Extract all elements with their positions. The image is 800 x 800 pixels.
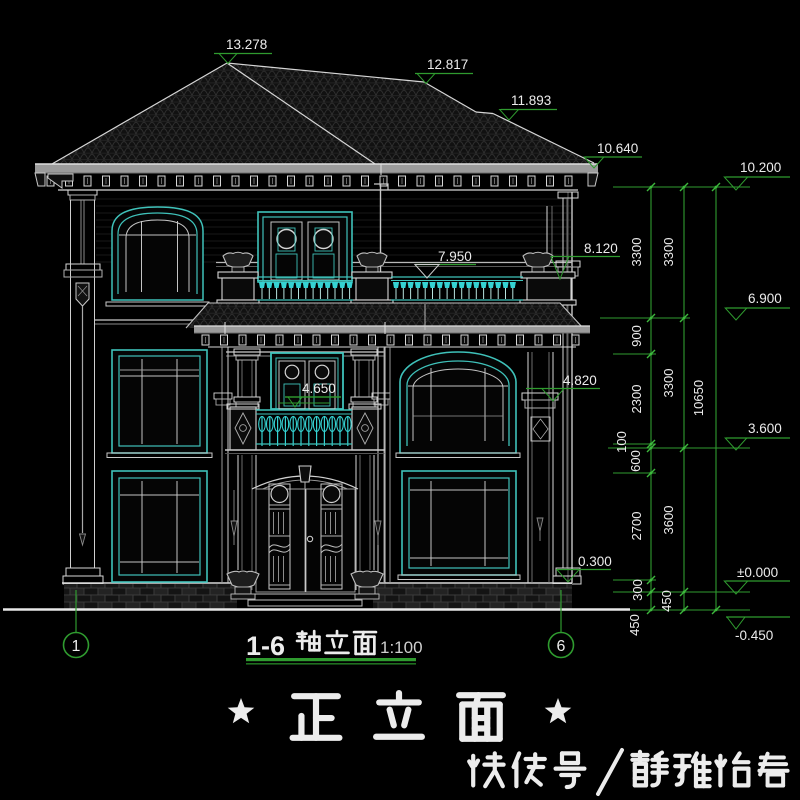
svg-text:1:100: 1:100 [380,638,423,657]
svg-text:10.640: 10.640 [597,141,638,156]
svg-text:3300: 3300 [661,238,676,267]
svg-text:300: 300 [630,579,645,601]
svg-text:600: 600 [628,450,643,472]
svg-text:2300: 2300 [629,385,644,414]
svg-text:-0.450: -0.450 [735,628,773,643]
svg-text:8.120: 8.120 [584,241,618,256]
svg-text:0.300: 0.300 [578,554,612,569]
svg-text:3300: 3300 [629,238,644,267]
svg-text:2700: 2700 [629,512,644,541]
svg-text:11.893: 11.893 [511,93,551,108]
svg-text:450: 450 [659,590,674,612]
svg-text:900: 900 [629,325,644,347]
svg-text:3300: 3300 [661,369,676,398]
svg-text:13.278: 13.278 [226,37,267,52]
svg-text:7.950: 7.950 [438,249,472,264]
svg-text:100: 100 [614,431,629,453]
svg-text:1: 1 [72,638,81,655]
svg-text:6.900: 6.900 [748,291,782,306]
svg-text:3600: 3600 [661,506,676,535]
svg-text:12.817: 12.817 [427,57,468,72]
svg-text:6: 6 [557,638,566,655]
svg-text:10.200: 10.200 [740,160,781,175]
svg-text:450: 450 [627,614,642,636]
svg-text:1-6: 1-6 [246,631,285,661]
svg-text:4.650: 4.650 [302,381,336,396]
svg-text:10650: 10650 [691,380,706,416]
svg-text:±0.000: ±0.000 [737,565,778,580]
svg-text:3.600: 3.600 [748,421,782,436]
svg-text:4.820: 4.820 [563,373,597,388]
